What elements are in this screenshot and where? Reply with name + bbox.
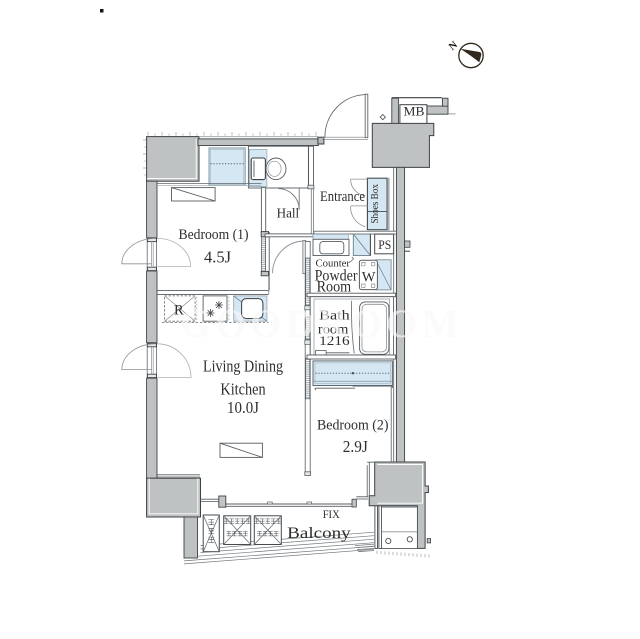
svg-text:Bedroom (2): Bedroom (2) [317, 417, 389, 433]
svg-text:2.9J: 2.9J [343, 437, 368, 456]
svg-text:Hall: Hall [277, 206, 300, 221]
svg-text:W: W [362, 270, 376, 286]
svg-text:Living Dining: Living Dining [203, 357, 283, 376]
svg-text:Shoes Box: Shoes Box [370, 183, 381, 223]
svg-text:Kitchen: Kitchen [220, 380, 265, 399]
svg-text:FIX: FIX [323, 507, 340, 521]
svg-text:GOODROOM: GOODROOM [180, 301, 463, 346]
svg-text:MB: MB [404, 105, 425, 119]
svg-text:Balcony: Balcony [287, 525, 351, 542]
svg-text:PS: PS [378, 238, 391, 252]
svg-text:Bedroom (1): Bedroom (1) [179, 227, 249, 243]
svg-text:10.0J: 10.0J [227, 398, 259, 417]
svg-text:Entrance: Entrance [320, 189, 365, 205]
svg-text:4.5J: 4.5J [204, 247, 231, 266]
